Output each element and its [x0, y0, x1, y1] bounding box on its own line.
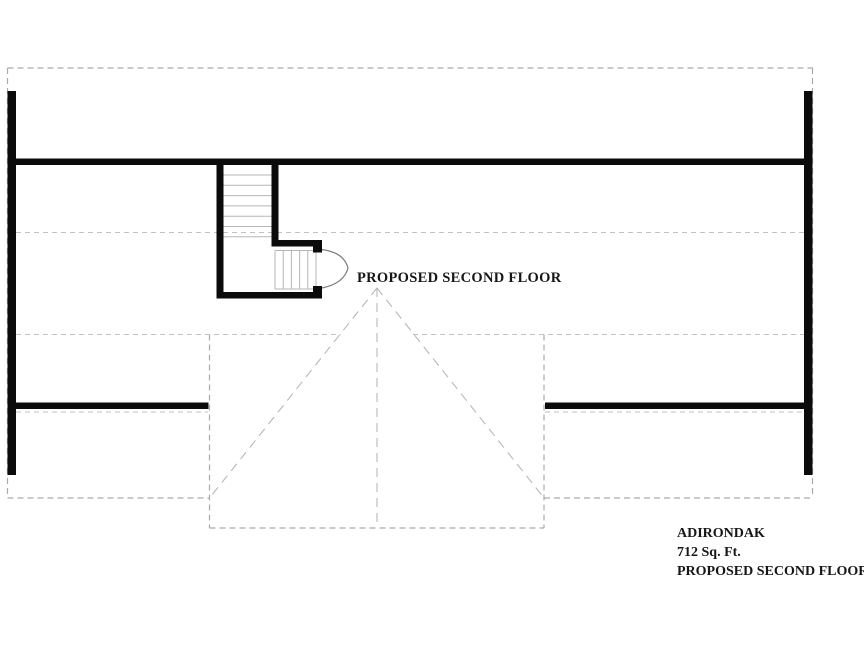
stairwell-wall-right-upper: [272, 162, 279, 247]
title-block-area: 712 Sq. Ft.: [677, 543, 864, 562]
dormer-valley-right: [377, 288, 544, 498]
knee-wall-lines: [16, 233, 805, 413]
stairwell-wall-bottom: [217, 292, 314, 299]
title-block: ADIRONDAK 712 Sq. Ft. PROPOSED SECOND FL…: [677, 524, 864, 581]
floor-plan: PROPOSED SECOND FLOOR ADIRONDAK 712 Sq. …: [0, 0, 864, 648]
door-jamb-bottom: [313, 286, 322, 299]
knee-wall-right: [545, 403, 805, 410]
dormer-ridge-lines: [210, 288, 545, 528]
interior-wall-top: [8, 159, 813, 166]
plan-label: PROPOSED SECOND FLOOR: [357, 270, 562, 287]
stair-treads-upper: [224, 175, 272, 237]
knee-wall-left: [15, 403, 209, 410]
roof-outline: [8, 68, 814, 528]
stairwell-wall-jog: [272, 240, 314, 247]
title-block-floor: PROPOSED SECOND FLOOR: [677, 562, 864, 581]
door-jamb-top: [313, 240, 322, 253]
exterior-wall-right: [804, 91, 813, 475]
stair-treads-lower: [275, 251, 322, 290]
title-block-project: ADIRONDAK: [677, 524, 864, 543]
exterior-wall-left: [8, 91, 17, 475]
stairwell-wall-left: [217, 162, 224, 299]
door-swing-arc: [322, 250, 348, 289]
dormer-valley-left: [210, 288, 378, 498]
